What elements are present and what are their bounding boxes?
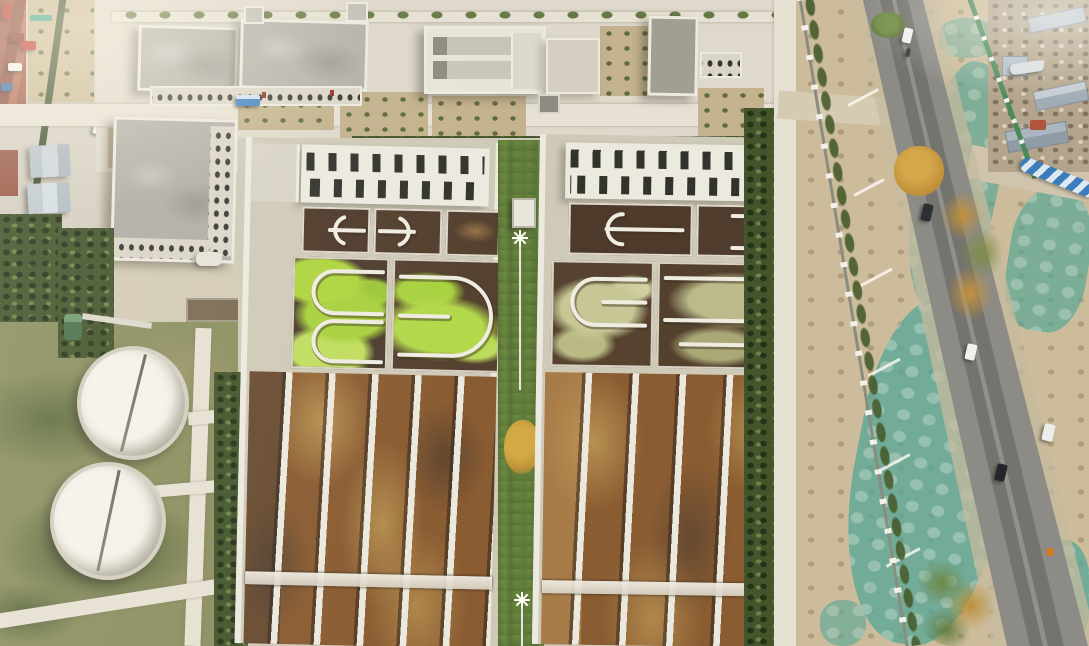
junkyard-red-debris [1030, 120, 1046, 130]
stair-tower-2 [346, 2, 368, 22]
stair-tower-1 [244, 6, 264, 24]
basin-crosswalk-a [245, 571, 492, 590]
white-tanks-small [196, 252, 222, 266]
west-gallery-a [251, 143, 300, 202]
baffle-svg [293, 258, 387, 368]
algae-cell-a-west [291, 256, 390, 370]
roadside-tree-south [912, 556, 998, 646]
annex-red-door [262, 92, 266, 98]
main-building [110, 116, 238, 263]
red-roof-house-small [0, 150, 18, 196]
algae-cell-a-east [391, 258, 502, 372]
slotted-roof-b [565, 142, 766, 201]
baffle-svg [393, 261, 499, 371]
blower-house [647, 16, 698, 97]
parked-car-blue [1, 83, 13, 91]
filter-channel-2 [433, 61, 511, 79]
ditch-cell-b1 [568, 202, 693, 256]
baffle-svg [303, 208, 368, 251]
filter-east-wing [546, 38, 600, 94]
filter-annex [511, 33, 541, 89]
roadside-tree-autumn-2 [936, 186, 1012, 320]
filter-channel-1 [433, 37, 511, 55]
baffle-svg [375, 210, 440, 253]
aerial-photo-wastewater-plant [0, 0, 1089, 646]
road-orange-object [1046, 548, 1054, 556]
parked-car-red [21, 41, 36, 50]
admin-building-b [239, 18, 369, 91]
blue-bus [236, 95, 260, 106]
high-mast-head-1 [512, 230, 528, 246]
parked-car-white [8, 63, 22, 71]
treatment-train-a [235, 137, 502, 646]
main-building-east-facade [207, 126, 234, 257]
high-mast-pole-1 [519, 240, 521, 390]
dark-utility-box [538, 94, 560, 114]
high-mast-head-2 [514, 592, 530, 608]
vent-slot-row [306, 152, 484, 174]
blower-annex [700, 52, 742, 78]
vent-slot-row [306, 178, 484, 200]
annex-red-door-2 [330, 90, 334, 96]
median-structure [512, 198, 536, 228]
roadside-tree-north [871, 12, 905, 38]
container-shed-1 [29, 144, 71, 178]
admin-building-a [137, 25, 239, 94]
vent-slot-row [570, 175, 760, 196]
ditch-cell-a3 [445, 210, 500, 257]
sedimentation-lanes-a [244, 371, 497, 646]
baffle-svg [552, 262, 652, 366]
roadside-tree-autumn-1 [894, 146, 944, 196]
container-shed-2 [27, 182, 71, 214]
dirt-island-5 [600, 26, 650, 96]
clarifier-tank-2 [50, 462, 166, 580]
clarifier-bridge-2 [96, 470, 120, 572]
baffle-svg [570, 204, 691, 254]
clarifier-bridge-1 [119, 354, 146, 451]
teal-dumpsters [30, 15, 52, 21]
clarifier-tank-1 [77, 346, 189, 460]
equipment-pit [186, 298, 246, 322]
green-process-tank [64, 314, 82, 340]
east-hedge-strip [744, 108, 774, 646]
ditch-cell-a2 [373, 208, 442, 256]
slotted-roof-a [301, 144, 490, 206]
algae-cell-b-west [550, 260, 654, 368]
filter-house [424, 26, 546, 94]
ditch-cell-a1 [301, 206, 370, 254]
vent-slot-row [570, 149, 760, 170]
